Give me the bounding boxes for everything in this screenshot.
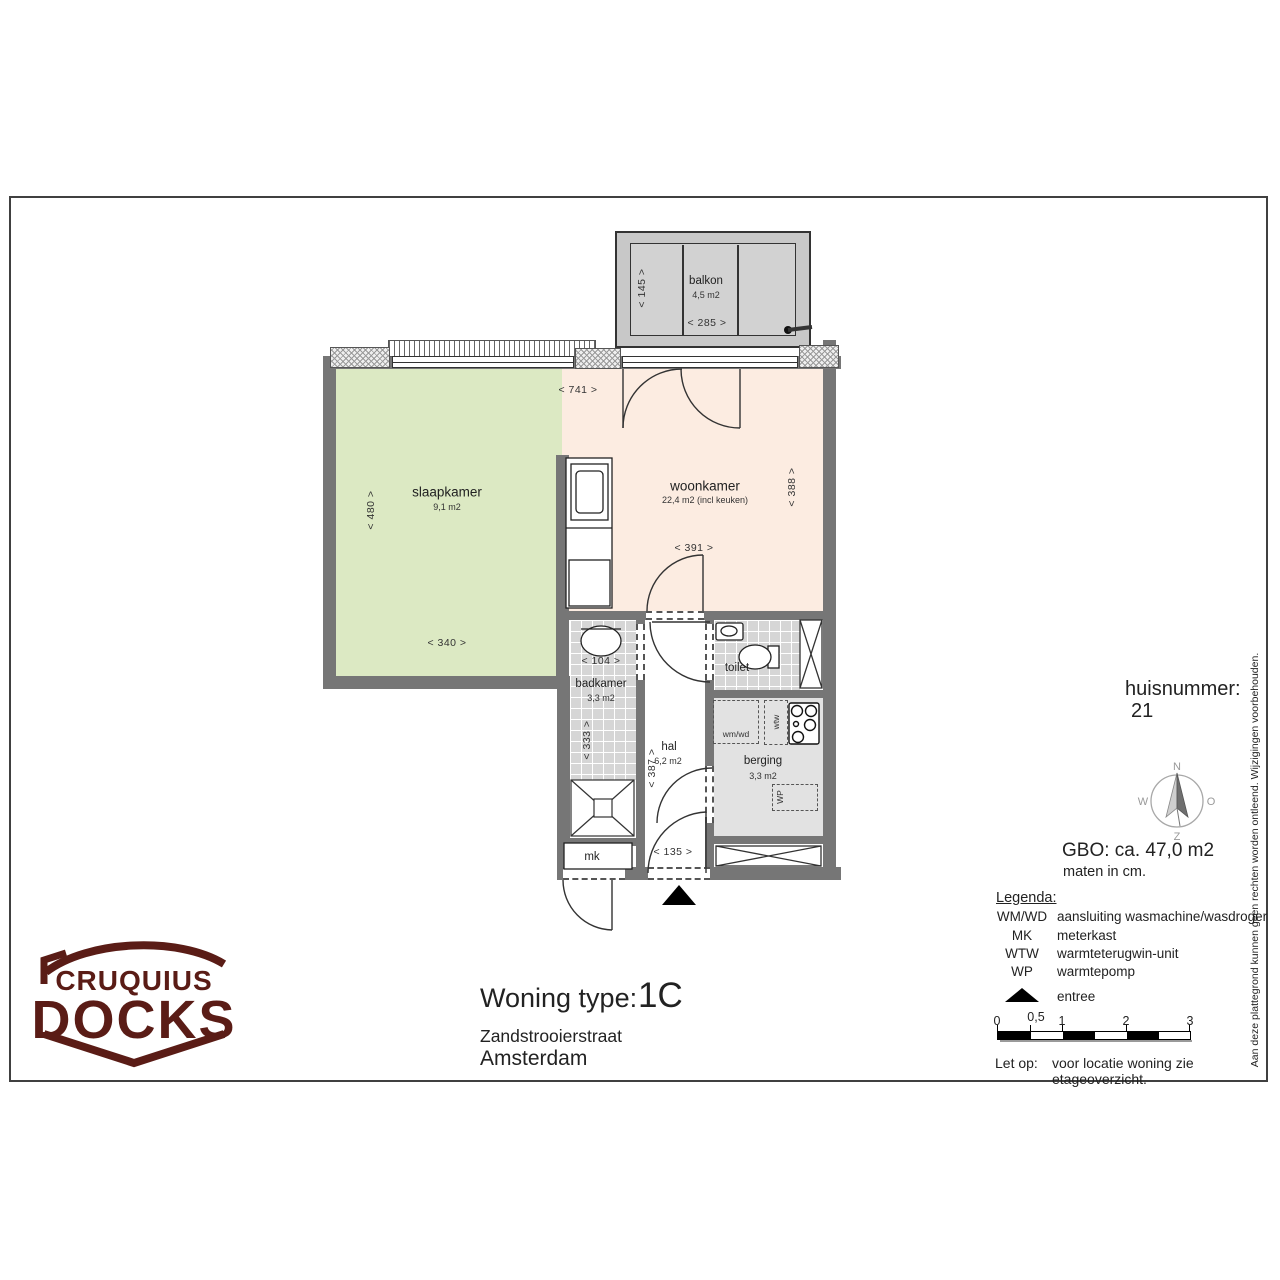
huisnummer-value: 21 [1131,700,1153,723]
label-wp: WP [775,790,785,804]
compass-w: W [1138,796,1149,808]
compass-needle-light [1166,773,1177,817]
cruquius-docks-logo: CRUQUIUS DOCKS [28,930,240,1070]
shower [571,780,634,836]
dim-391: < 391 > [674,542,713,554]
legend-abbr-wp: WP [994,964,1050,979]
legend-desc-mk: meterkast [1057,928,1116,943]
woning-type-value: 1C [638,976,683,1016]
shaft-cross [800,620,822,688]
room-label-slaapkamer: slaapkamer [412,485,482,500]
room-area-woonkamer: 22,4 m2 (incl keuken) [662,495,748,505]
dim-333: < 333 > [581,720,593,759]
compass-needle-dark [1177,773,1188,817]
room-label-berging: berging [744,755,782,767]
cooktop [789,703,819,744]
legend-entree-label: entree [1057,989,1095,1004]
dim-741: < 741 > [558,384,597,396]
huisnummer-label: huisnummer: [1125,678,1241,701]
kitchen-counter [566,458,612,608]
plan-line-overlay [0,0,1280,1280]
street-name: Zandstrooierstraat [480,1026,622,1047]
scale-bar-shadow [1000,1040,1192,1042]
legend-abbr-mk: MK [994,928,1050,943]
label-wmwd: wm/wd [723,729,749,739]
legend-abbr-wmwd: WM/WD [994,909,1050,924]
units-note: maten in cm. [1063,864,1146,880]
room-area-hal: 6,2 m2 [654,756,682,766]
logo-line2: DOCKS [31,990,236,1050]
scale-bar [997,1031,1191,1040]
compass-o: O [1207,796,1216,808]
dim-388: < 388 > [786,467,798,506]
scale-tick-3: 3 [1187,1014,1194,1028]
label-wtw: wtw [771,715,781,730]
scale-tick-05: 0,5 [1027,1010,1044,1024]
city-name: Amsterdam [480,1047,587,1071]
dim-285: < 285 > [687,317,726,329]
woning-type-label: Woning type: [480,983,637,1014]
dim-145: < 145 > [636,268,648,307]
dim-104: < 104 > [581,655,620,667]
room-label-woonkamer: woonkamer [670,479,740,494]
compass: N O Z W [1137,761,1217,841]
legend-abbr-wtw: WTW [994,946,1050,961]
legend-desc-wmwd: aansluiting wasmachine/wasdroger [1057,909,1267,924]
note-text: voor locatie woning zie etageoverzicht. [1052,1055,1280,1087]
dim-340: < 340 > [427,637,466,649]
note-label: Let op: [995,1055,1038,1071]
balkon-doors [623,326,812,428]
room-label-balkon: balkon [689,275,723,287]
room-label-hal: hal [661,741,676,753]
room-area-badkamer: 3,3 m2 [587,693,615,703]
compass-n: N [1173,761,1181,773]
dim-480: < 480 > [365,490,377,529]
legend-heading: Legenda: [996,890,1056,906]
room-area-slaapkamer: 9,1 m2 [433,502,461,512]
room-area-balkon: 4,5 m2 [692,290,720,300]
legend-desc-wtw: warmteterugwin-unit [1057,946,1179,961]
legend-desc-wp: warmtepomp [1057,964,1135,979]
room-label-toilet: toilet [725,662,749,674]
legend-entree-arrow [1005,988,1039,1002]
bottom-shaft-cross [716,846,821,866]
dim-135: < 135 > [653,846,692,858]
floor-plan: slaapkamer 9,1 m2 woonkamer 22,4 m2 (inc… [0,0,1280,1280]
disclaimer-text: Aan deze plattegrond kunnen geen rechten… [1249,650,1263,1070]
gbo-value: GBO: ca. 47,0 m2 [1062,840,1214,862]
dim-387: < 387 > [646,748,658,787]
room-label-badkamer: badkamer [575,678,626,690]
room-area-berging: 3,3 m2 [749,771,777,781]
room-label-mk: mk [584,851,599,863]
floorplan-sheet: slaapkamer 9,1 m2 woonkamer 22,4 m2 (inc… [0,0,1280,1280]
badkamer-fixtures [581,626,621,656]
